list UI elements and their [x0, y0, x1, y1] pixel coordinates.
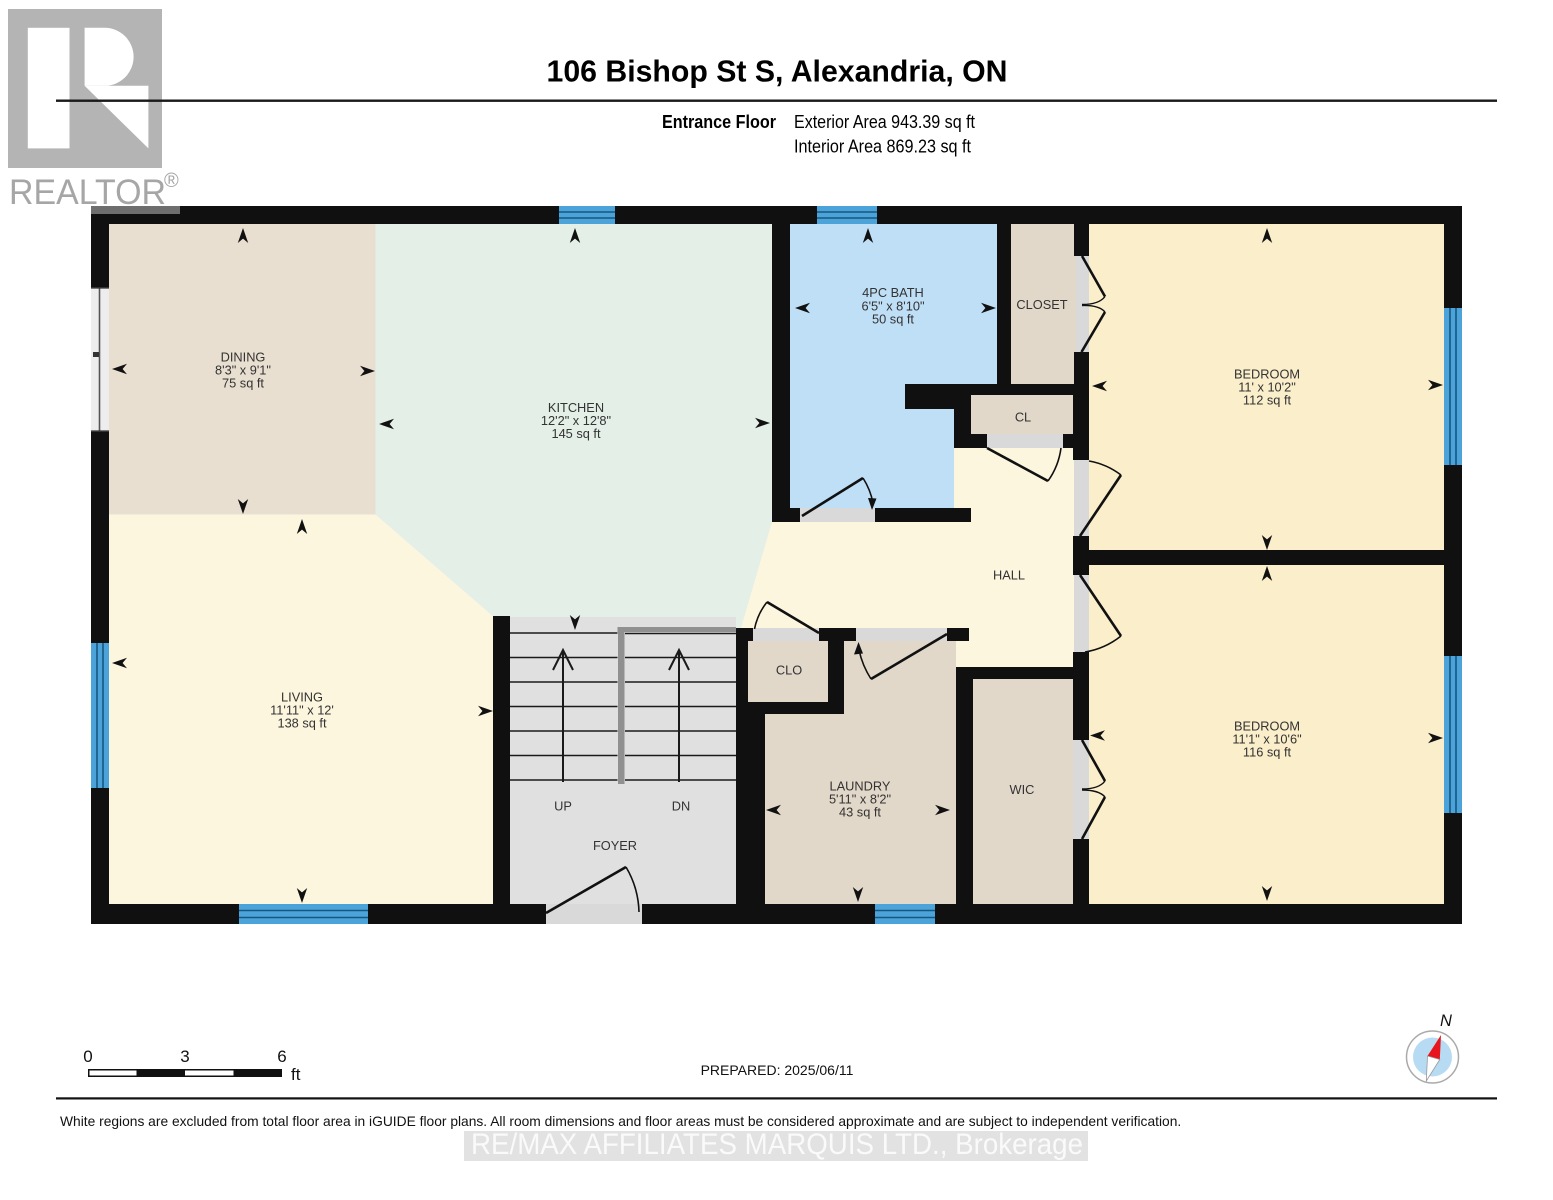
- svg-text:106 Bishop St S, Alexandria, O: 106 Bishop St S, Alexandria, ON: [547, 54, 1008, 89]
- svg-text:Interior Area 869.23 sq ft: Interior Area 869.23 sq ft: [794, 136, 971, 156]
- svg-text:N: N: [1440, 1012, 1452, 1030]
- svg-text:43 sq ft: 43 sq ft: [839, 805, 881, 820]
- svg-text:WIC: WIC: [1010, 782, 1035, 797]
- svg-text:FOYER: FOYER: [593, 838, 637, 853]
- svg-text:CLO: CLO: [776, 663, 802, 678]
- svg-text:White regions are excluded fro: White regions are excluded from total fl…: [60, 1114, 1181, 1129]
- svg-text:112 sq ft: 112 sq ft: [1243, 393, 1292, 408]
- svg-text:®: ®: [164, 170, 179, 192]
- svg-text:CL: CL: [1015, 410, 1031, 425]
- svg-text:145 sq ft: 145 sq ft: [551, 426, 601, 441]
- svg-text:Exterior Area 943.39 sq ft: Exterior Area 943.39 sq ft: [794, 112, 975, 132]
- svg-text:CLOSET: CLOSET: [1016, 297, 1067, 312]
- svg-text:3: 3: [180, 1047, 189, 1066]
- svg-text:6: 6: [277, 1047, 286, 1066]
- svg-text:PREPARED: 2025/06/11: PREPARED: 2025/06/11: [701, 1062, 854, 1078]
- svg-text:DN: DN: [672, 799, 690, 814]
- svg-text:50 sq ft: 50 sq ft: [872, 312, 914, 327]
- svg-text:Entrance Floor: Entrance Floor: [662, 112, 776, 132]
- svg-text:HALL: HALL: [993, 568, 1025, 583]
- svg-text:116 sq ft: 116 sq ft: [1243, 745, 1292, 760]
- svg-text:RE/MAX AFFILIATES MARQUIS LTD.: RE/MAX AFFILIATES MARQUIS LTD., Brokerag…: [471, 1128, 1083, 1161]
- svg-text:ft: ft: [291, 1065, 301, 1084]
- svg-text:UP: UP: [554, 799, 572, 814]
- svg-text:138 sq ft: 138 sq ft: [277, 716, 327, 731]
- svg-text:0: 0: [83, 1047, 92, 1066]
- svg-text:75 sq ft: 75 sq ft: [222, 376, 264, 391]
